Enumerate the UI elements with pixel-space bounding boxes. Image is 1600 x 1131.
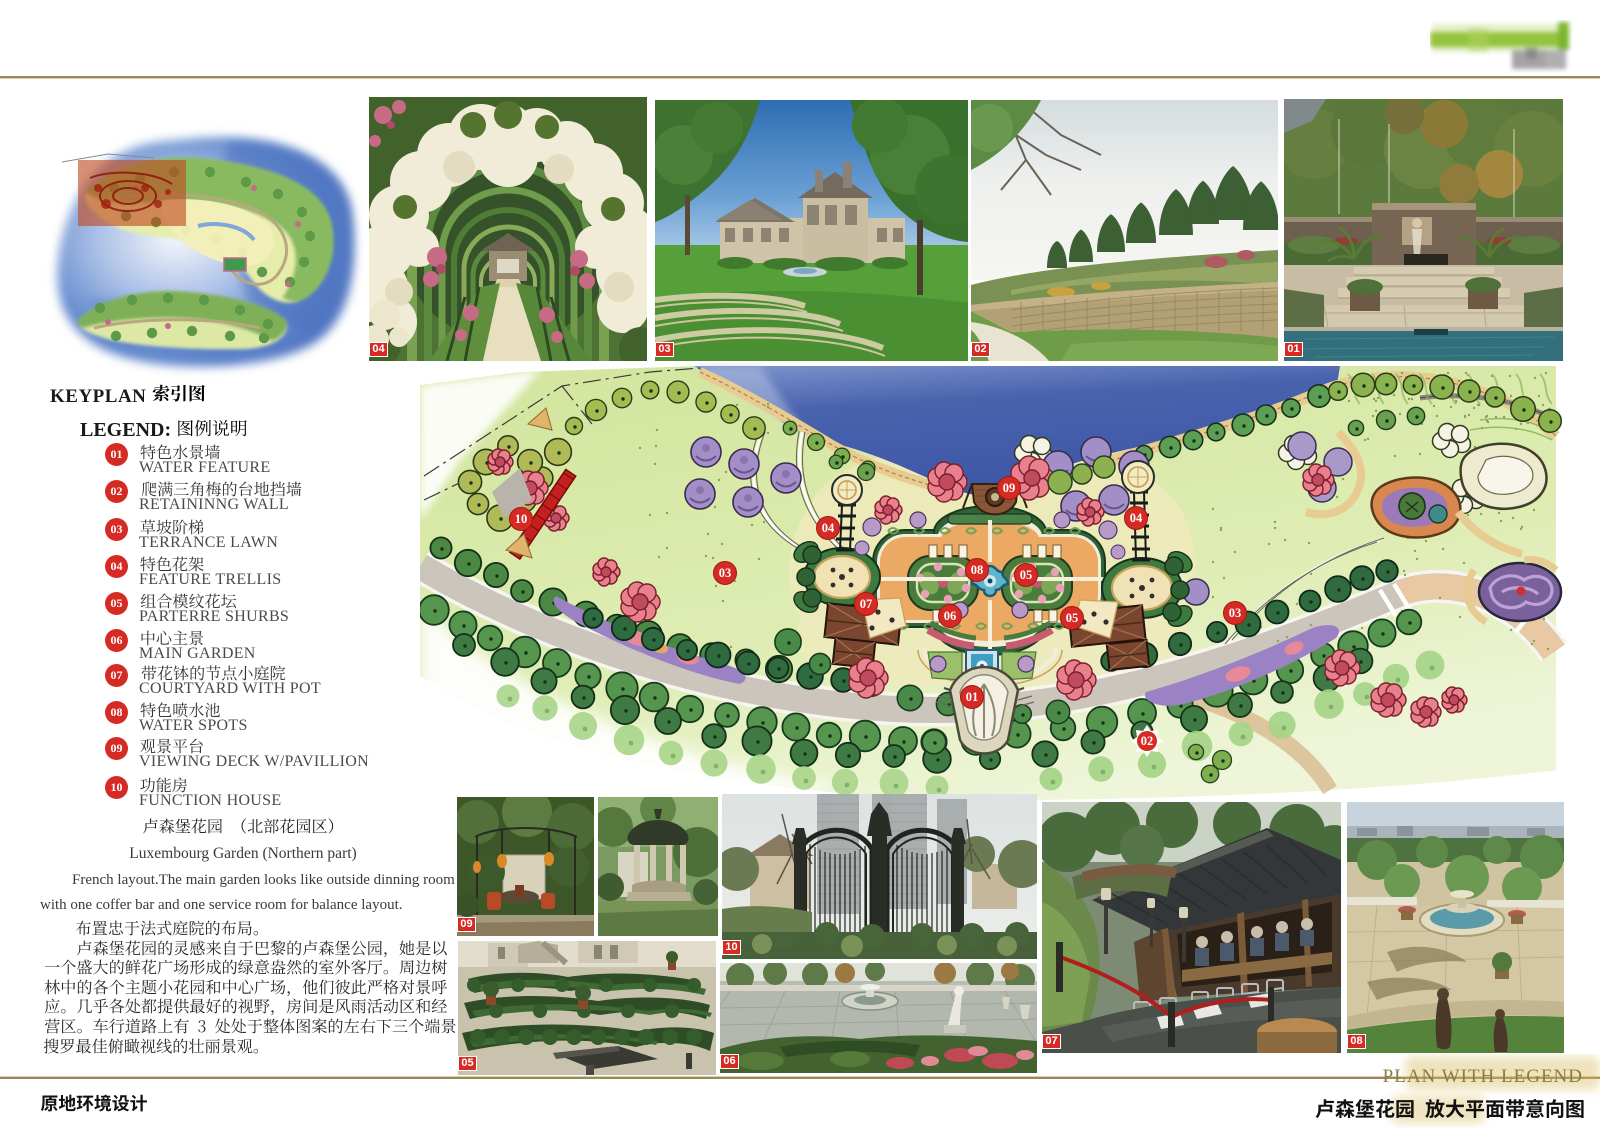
svg-text:06: 06 bbox=[944, 609, 957, 623]
svg-text:07: 07 bbox=[860, 597, 873, 611]
svg-text:04: 04 bbox=[822, 521, 835, 535]
svg-text:03: 03 bbox=[1229, 606, 1242, 620]
svg-text:09: 09 bbox=[1003, 481, 1016, 495]
svg-text:08: 08 bbox=[971, 563, 984, 577]
svg-text:04: 04 bbox=[1130, 511, 1143, 525]
svg-text:02: 02 bbox=[1141, 734, 1154, 748]
svg-text:05: 05 bbox=[1020, 568, 1033, 582]
svg-text:03: 03 bbox=[719, 566, 732, 580]
svg-text:05: 05 bbox=[1066, 611, 1079, 625]
svg-text:10: 10 bbox=[515, 512, 528, 526]
svg-text:01: 01 bbox=[966, 690, 979, 704]
